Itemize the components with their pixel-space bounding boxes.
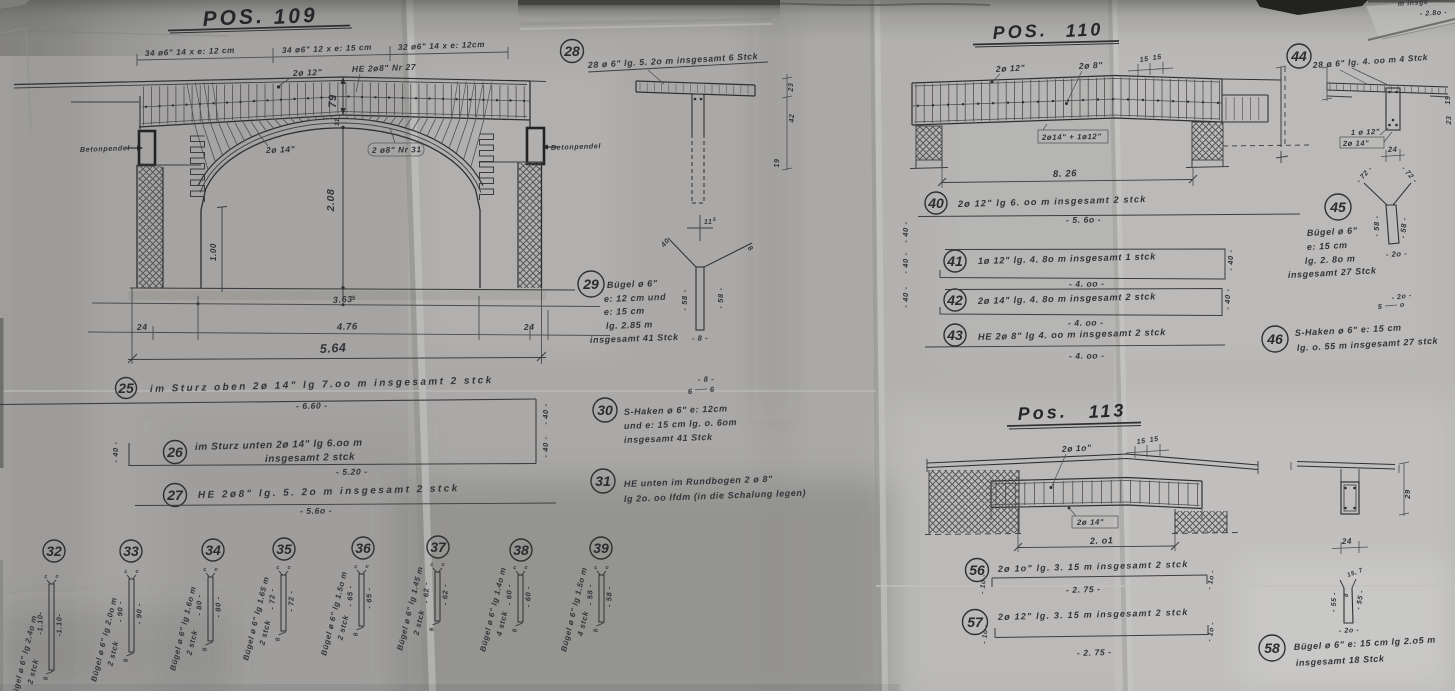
svg-text:5.64: 5.64 [319,341,346,356]
svg-text:- 4. oo -: - 4. oo - [1068,317,1104,328]
svg-text:- 4. oo -: - 4. oo - [1069,350,1105,361]
svg-text:POS.: POS. [202,5,265,31]
svg-text:B: B [594,628,600,632]
svg-text:113: 113 [1088,400,1127,422]
svg-text:2. o1: 2. o1 [1089,535,1114,546]
svg-text:19: 19 [1445,96,1452,105]
svg-text:24: 24 [523,322,535,332]
svg-text:2ø 12": 2ø 12" [292,67,323,78]
svg-text:6: 6 [688,387,693,396]
svg-text:15: 15 [1149,436,1159,444]
svg-text:42: 42 [946,292,963,308]
svg-text:Bügel ø 6": Bügel ø 6" [607,278,658,290]
svg-text:- 5.20 -: - 5.20 - [336,466,368,477]
svg-text:- 58 -: - 58 - [605,586,614,607]
svg-text:- 2. 75 -: - 2. 75 - [1077,647,1112,658]
svg-text:41: 41 [946,253,963,269]
svg-text:- 40 -: - 40 - [1223,288,1232,309]
svg-text:- 40 -: - 40 - [901,286,910,307]
svg-text:- 65 -: - 65 - [346,585,355,606]
svg-text:58: 58 [1264,640,1280,656]
svg-text:lg. 2.85 m: lg. 2.85 m [606,319,653,331]
svg-text:26: 26 [166,444,183,460]
svg-text:8. 26: 8. 26 [1053,168,1078,180]
svg-text:- 90 -: - 90 - [135,603,144,624]
svg-text:2ø 14": 2ø 14" [1076,518,1104,527]
svg-text:109: 109 [273,4,318,29]
svg-text:32: 32 [46,543,62,559]
svg-text:Betonpendel: Betonpendel [551,141,602,152]
svg-text:POS.: POS. [992,20,1048,43]
svg-text:- 40 -: - 40 - [1226,249,1235,270]
svg-text:44: 44 [1290,48,1307,64]
svg-text:2ø 14": 2ø 14" [265,144,296,155]
svg-text:24: 24 [1387,145,1398,154]
svg-text:- 58 -: - 58 - [586,584,595,605]
svg-text:5: 5 [713,217,717,223]
svg-text:Betonpendel: Betonpendel [80,143,131,154]
svg-text:110: 110 [1065,19,1104,41]
svg-text:24: 24 [1341,537,1352,546]
svg-text:- 60 -: - 60 - [524,586,533,607]
svg-text:28: 28 [563,43,580,59]
svg-text:- 40 -: - 40 - [541,436,550,457]
svg-text:o: o [1400,302,1405,309]
svg-text:- 80 -: - 80 - [195,594,204,615]
svg-text:Pos.: Pos. [1017,401,1068,424]
svg-text:1 ø 12": 1 ø 12" [1351,127,1380,137]
svg-text:- 58 -: - 58 - [680,289,689,310]
svg-text:e: 15 cm: e: 15 cm [1307,240,1348,252]
svg-text:8: 8 [1344,593,1350,597]
svg-text:- 5. 6o -: - 5. 6o - [1066,214,1101,225]
svg-text:31: 31 [595,473,611,489]
svg-text:46: 46 [1266,331,1283,347]
svg-text:- 58 -: - 58 - [716,287,725,308]
svg-text:e: 15 cm: e: 15 cm [604,306,645,317]
svg-text:- 62 -: - 62 - [422,582,431,603]
svg-text:2ø14" + 1ø12": 2ø14" + 1ø12" [1041,132,1102,142]
svg-text:- 6.60 -: - 6.60 - [296,400,328,411]
svg-text:34: 34 [205,542,221,558]
svg-text:11: 11 [334,118,341,126]
svg-text:B: B [124,658,130,662]
svg-text:- 80 -: - 80 - [214,596,223,617]
svg-text:- 72 -: - 72 - [287,590,296,611]
svg-text:- 55 -: - 55 - [1330,592,1338,612]
svg-text:45: 45 [1329,199,1346,215]
svg-text:B: B [354,632,360,636]
svg-text:11: 11 [704,219,713,226]
svg-text:2ø 8": 2ø 8" [1078,60,1104,71]
svg-text:- 40 -: - 40 - [111,441,120,462]
svg-text:36: 36 [355,540,371,556]
svg-text:-1.10-: -1.10- [55,613,64,636]
svg-text:23: 23 [1446,116,1453,126]
svg-text:- 60 -: - 60 - [505,584,514,605]
svg-text:5: 5 [352,296,356,302]
svg-text:5: 5 [1378,304,1383,311]
svg-text:30: 30 [597,402,613,418]
svg-text:19: 19 [774,159,781,168]
svg-text:- 65 -: - 65 - [365,587,374,608]
svg-text:43: 43 [946,327,963,343]
svg-text:37: 37 [430,539,447,555]
svg-text:15: 15 [1136,438,1146,446]
svg-text:B: B [513,628,519,632]
svg-text:- 8 -: - 8 - [692,333,709,343]
svg-text:57: 57 [967,614,984,630]
svg-text:- 2o -: - 2o - [1339,627,1360,635]
svg-text:- 40 -: - 40 - [901,221,910,242]
svg-text:B: B [276,637,282,641]
svg-text:2.08: 2.08 [325,189,337,213]
svg-text:42: 42 [789,114,796,124]
svg-text:2ø 12": 2ø 12" [995,62,1026,74]
svg-text:29: 29 [1403,489,1412,500]
svg-text:- 5.6o -: - 5.6o - [300,505,332,516]
svg-text:29: 29 [582,276,599,292]
svg-text:24: 24 [136,322,148,332]
svg-text:- 8 -: - 8 - [698,374,715,384]
svg-text:15: 15 [1152,54,1162,62]
svg-text:2ø 1o": 2ø 1o" [1061,442,1093,454]
svg-text:- 58 -: - 58 - [1398,217,1409,239]
svg-text:23: 23 [788,83,795,93]
svg-text:- 40 -: - 40 - [901,252,910,273]
svg-text:B: B [203,647,209,651]
svg-text:4.76: 4.76 [336,321,358,333]
svg-text:79: 79 [327,94,339,108]
svg-text:- 2o -: - 2o - [1386,249,1408,259]
svg-text:- 2. 75 -: - 2. 75 - [1066,584,1101,595]
svg-text:2ø 14": 2ø 14" [1342,139,1369,148]
svg-text:33: 33 [123,543,139,559]
svg-text:15: 15 [1139,56,1149,64]
svg-text:27: 27 [166,487,184,503]
svg-text:40: 40 [927,195,944,211]
svg-text:38: 38 [513,542,529,558]
svg-text:35: 35 [276,541,292,557]
svg-text:1.00: 1.00 [209,243,218,261]
svg-text:6: 6 [710,385,715,394]
svg-text:- 72 -: - 72 - [268,588,277,609]
svg-text:- 40 -: - 40 - [541,403,550,424]
svg-text:25: 25 [117,380,134,396]
svg-text:- 4. oo -: - 4. oo - [1069,278,1105,289]
svg-text:B: B [430,627,436,631]
svg-text:B: B [44,676,50,680]
svg-text:- 62 -: - 62 - [441,584,450,605]
svg-text:- 58 -: - 58 - [1372,215,1381,236]
svg-text:39: 39 [593,540,609,556]
svg-text:2 ø8" Nr 31: 2 ø8" Nr 31 [371,145,422,155]
